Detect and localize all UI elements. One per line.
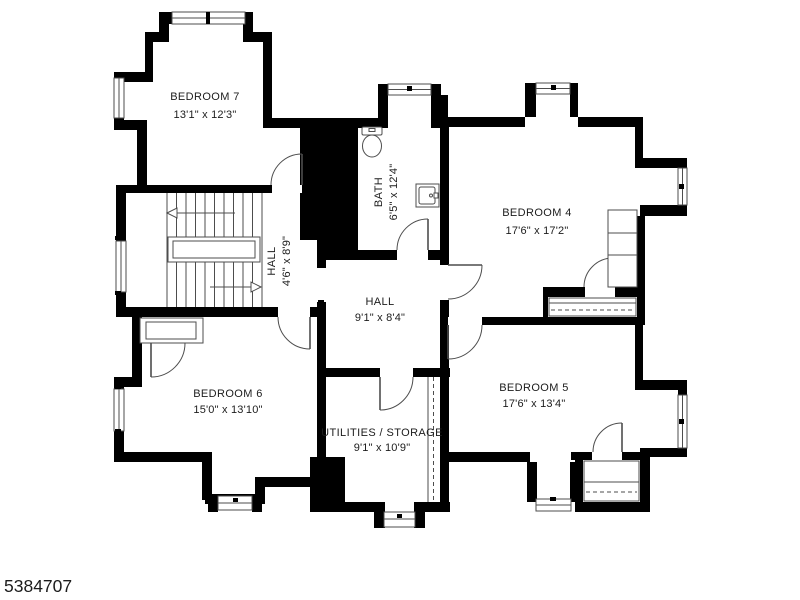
room-dims-bedroom-4: 17'6" x 17'2" [506, 225, 569, 237]
room-dims-utilities: 9'1" x 10'9" [354, 442, 411, 454]
stairs-up-arrow-icon [167, 208, 235, 218]
room-dims-hall-center: 9'1" x 8'4" [355, 312, 405, 324]
floor-plan-page: BEDROOM 7 13'1" x 12'3" HALL 4'6" x 8'9"… [0, 0, 800, 600]
room-label-bedroom-6: BEDROOM 6 [193, 388, 263, 400]
window [116, 241, 126, 292]
room-label-hall-stairs: HALL [266, 246, 278, 275]
photo-id: 5384707 [4, 576, 72, 597]
room-dims-bedroom-7: 13'1" x 12'3" [174, 109, 237, 121]
room-label-bedroom-5: BEDROOM 5 [499, 382, 569, 394]
bedroom-4-builtins [608, 210, 637, 287]
room-dims-bedroom-6: 15'0" x 13'10" [193, 404, 262, 416]
room-dims-bath: 6'5" x 12'4" [388, 164, 400, 221]
door-bath [397, 219, 428, 250]
utilities-partition [428, 377, 434, 502]
room-dims-bedroom-5: 17'6" x 13'4" [503, 398, 566, 410]
window [114, 389, 124, 431]
room-label-bath: BATH [373, 177, 385, 207]
sink-icon [416, 184, 439, 207]
room-label-hall-center: HALL [365, 296, 394, 308]
door-bedroom-5 [448, 325, 482, 359]
floor-plan-drawing: BEDROOM 7 13'1" x 12'3" HALL 4'6" x 8'9"… [0, 0, 800, 600]
staircase [167, 193, 262, 307]
door-utilities [380, 377, 413, 410]
bedroom-6-closet [140, 318, 203, 343]
room-label-utilities: UTILITIES / STORAGE [321, 427, 443, 439]
door-bedroom-4 [448, 265, 482, 299]
room-dims-hall-stairs: 4'6" x 8'9" [281, 236, 293, 286]
room-label-bedroom-7: BEDROOM 7 [170, 91, 240, 103]
stairs-down-arrow-icon [210, 282, 261, 292]
door-bedroom-6-closet [151, 343, 185, 377]
door-bedroom-6 [278, 317, 310, 349]
window [114, 78, 124, 118]
bedroom-4-closet [549, 298, 636, 316]
bedroom-5-closet [584, 461, 639, 501]
room-label-bedroom-4: BEDROOM 4 [502, 207, 572, 219]
toilet-icon [362, 127, 382, 157]
door-bedroom-5-closet [593, 423, 622, 452]
door-bedroom-7 [271, 154, 302, 185]
